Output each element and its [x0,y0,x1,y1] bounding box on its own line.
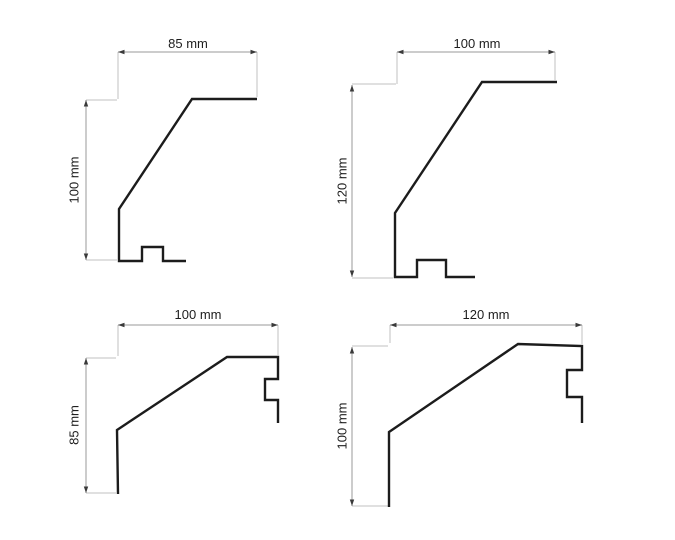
width-dimension-label: 100 mm [454,36,501,51]
dimension-arrow [350,347,354,354]
dimension-arrow [350,271,354,278]
technical-drawing-canvas: 85 mm100 mm100 mm120 mm100 mm85 mm120 mm… [0,0,675,540]
height-dimension-label: 120 mm [335,158,350,205]
width-dimension-label: 85 mm [168,36,208,51]
dimension-arrow [576,323,583,327]
height-dimension-label: 100 mm [335,403,350,450]
profile-diagram-top-right: 100 mm120 mm [335,36,557,278]
profile-outline [119,99,257,261]
width-dimension-label: 100 mm [175,307,222,322]
dimension-arrow [390,323,397,327]
profile-diagram-bottom-right: 120 mm100 mm [335,307,582,507]
profile-outline [395,82,557,277]
dimension-arrow [84,254,88,261]
dimension-arrow [84,358,88,365]
height-dimension-label: 85 mm [67,405,82,445]
dimension-arrow [397,50,404,54]
profile-outline [117,357,278,494]
dimension-arrow [350,85,354,92]
dimension-arrow [251,50,258,54]
dimension-arrow [118,50,125,54]
dimension-arrow [350,500,354,507]
dimension-arrow [84,487,88,494]
profile-diagram-top-left: 85 mm100 mm [67,36,257,261]
dimension-arrow [272,323,279,327]
height-dimension-label: 100 mm [67,157,82,204]
width-dimension-label: 120 mm [463,307,510,322]
dimension-arrow [84,100,88,107]
dimension-arrow [549,50,556,54]
profile-outline [389,344,582,507]
dimension-arrow [118,323,125,327]
flashing-profiles-diagram: 85 mm100 mm100 mm120 mm100 mm85 mm120 mm… [0,0,675,540]
profile-diagram-bottom-left: 100 mm85 mm [67,307,278,494]
